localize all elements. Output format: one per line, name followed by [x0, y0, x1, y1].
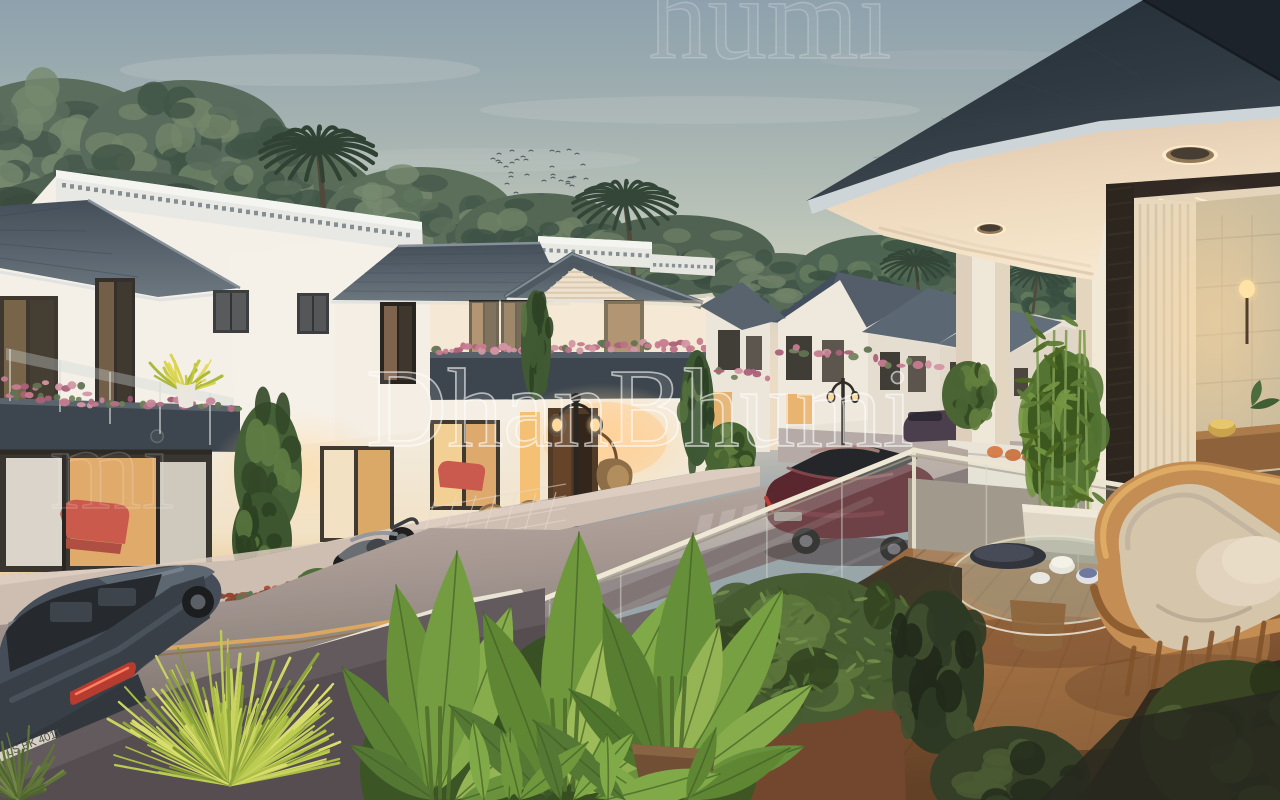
- svg-text:mi: mi: [50, 403, 175, 534]
- svg-text:DhanBhumi: DhanBhumi: [366, 347, 914, 471]
- svg-text:humi: humi: [649, 0, 892, 84]
